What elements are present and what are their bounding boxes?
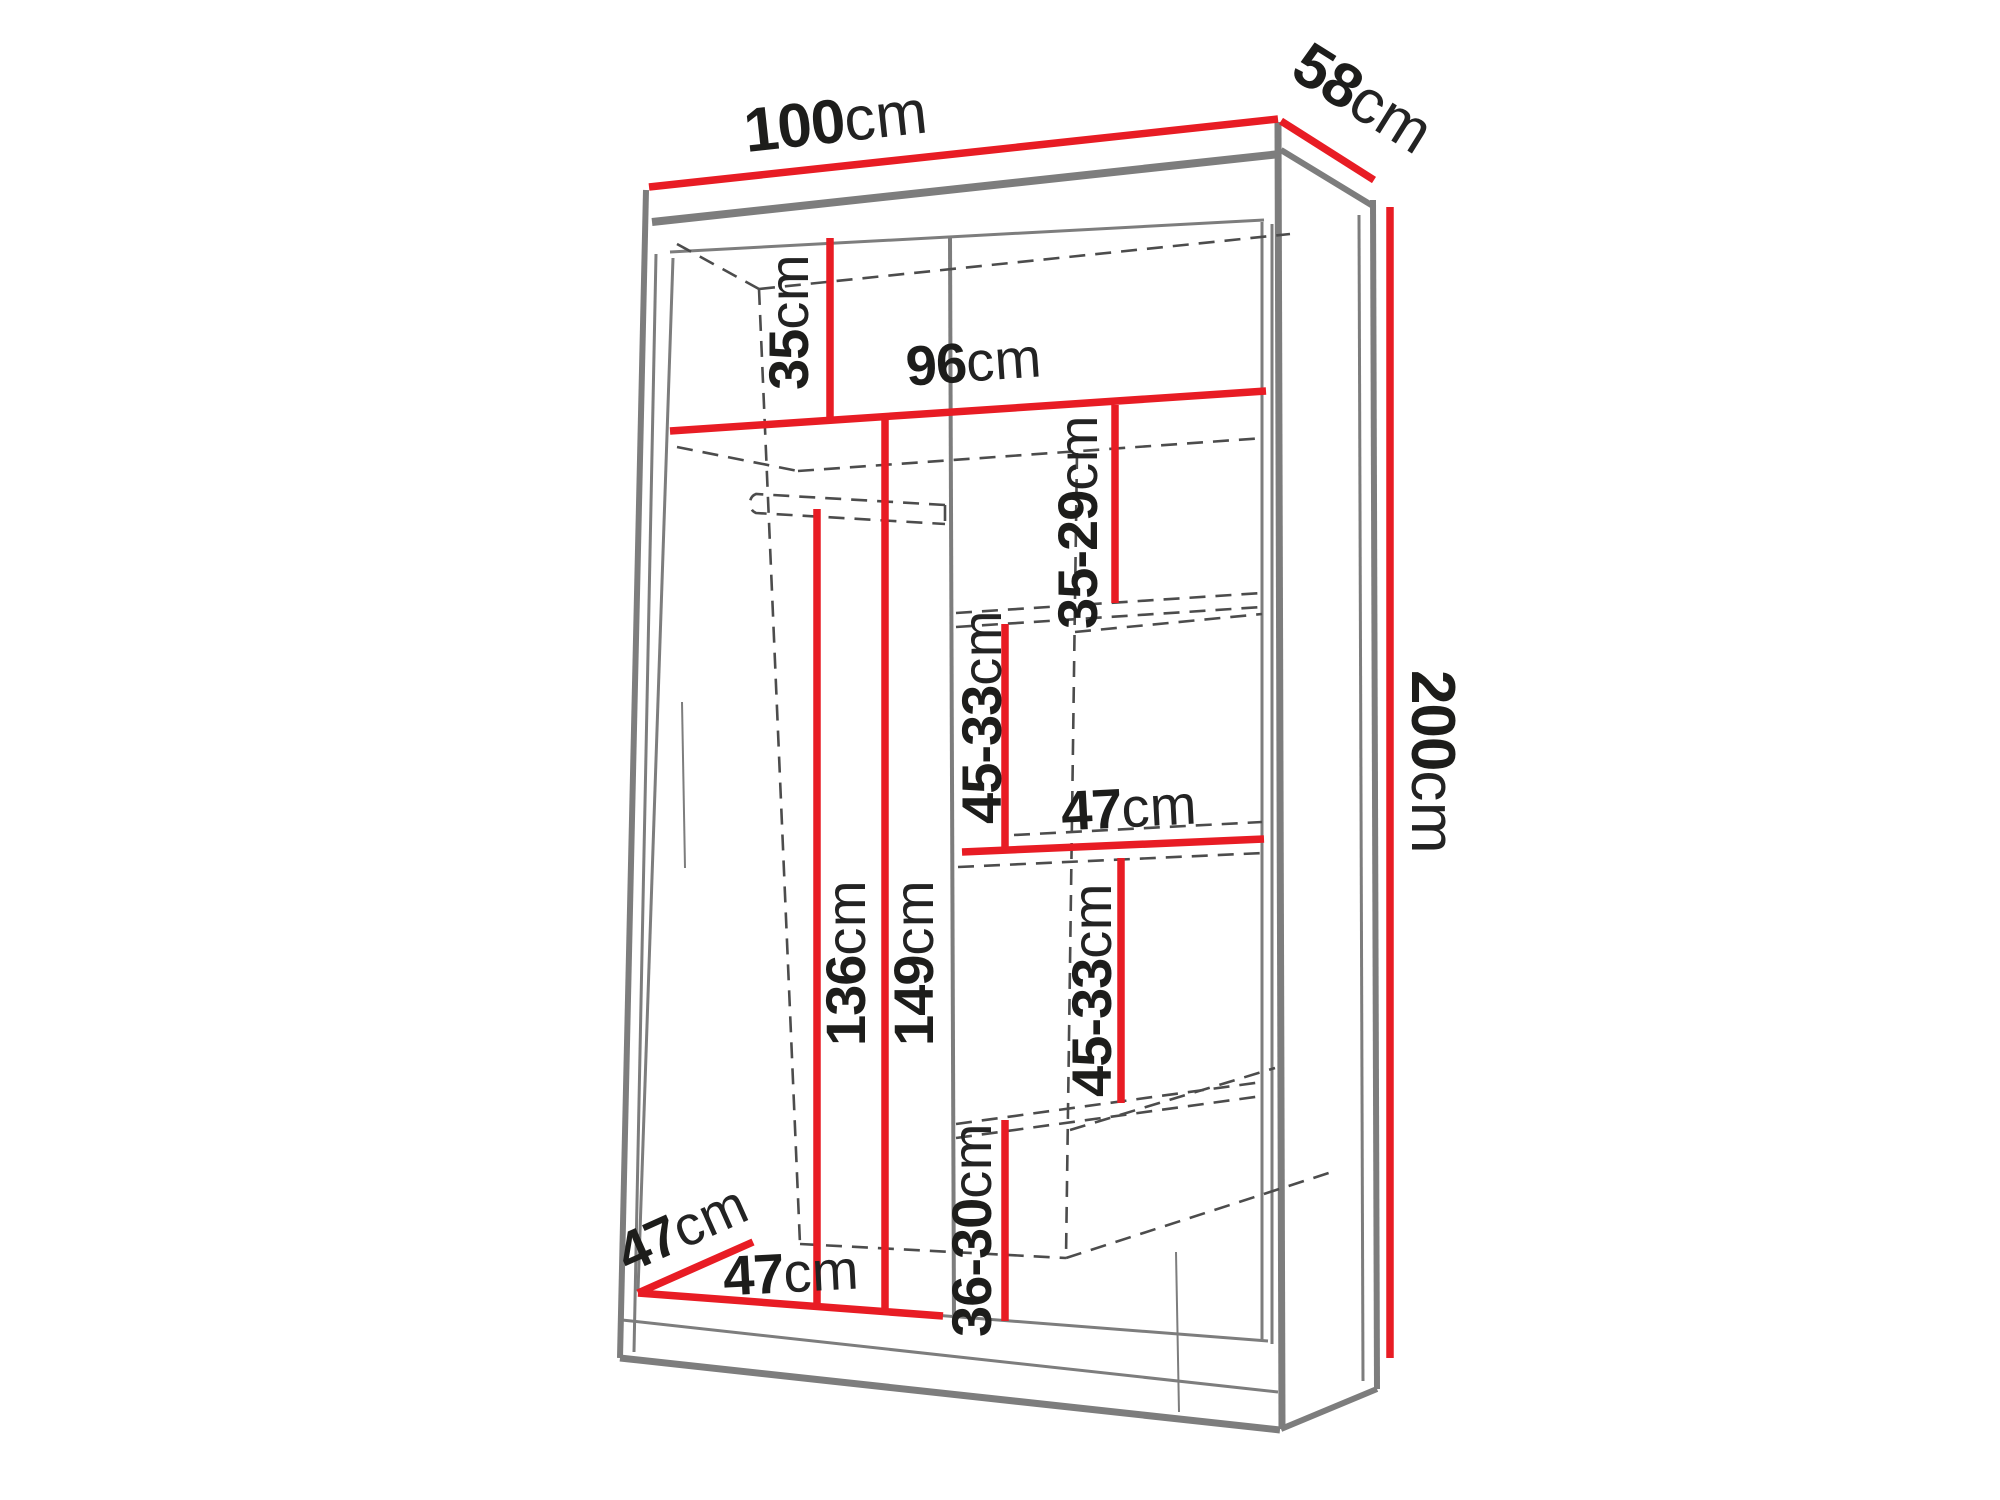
dim-left-height-label: 149cm [882,880,945,1046]
wardrobe-dimension-diagram: 100cm 58cm 200cm 35cm 96cm 35-29cm 45-33… [0,0,2000,1500]
dim-left-width-label: 47cm [721,1238,860,1308]
dim-hanging-height-label: 136cm [814,880,877,1046]
dim-gap3-label: 45-33cm [1060,883,1123,1097]
diagram-canvas: 100cm 58cm 200cm 35cm 96cm 35-29cm 45-33… [0,0,2000,1500]
dim-gap4-label: 36-30cm [940,1123,1003,1337]
right-front-edge [1278,122,1282,1429]
dim-top-section-label: 35cm [757,254,820,390]
dim-interior-width-label: 96cm [904,325,1044,397]
right-back-edge [1373,200,1377,1389]
dim-height-label: 200cm [1398,670,1467,854]
dim-gap2-label: 45-33cm [950,610,1013,824]
dim-right-width-label: 47cm [1059,773,1198,843]
dim-gap1-label: 35-29cm [1046,415,1109,629]
